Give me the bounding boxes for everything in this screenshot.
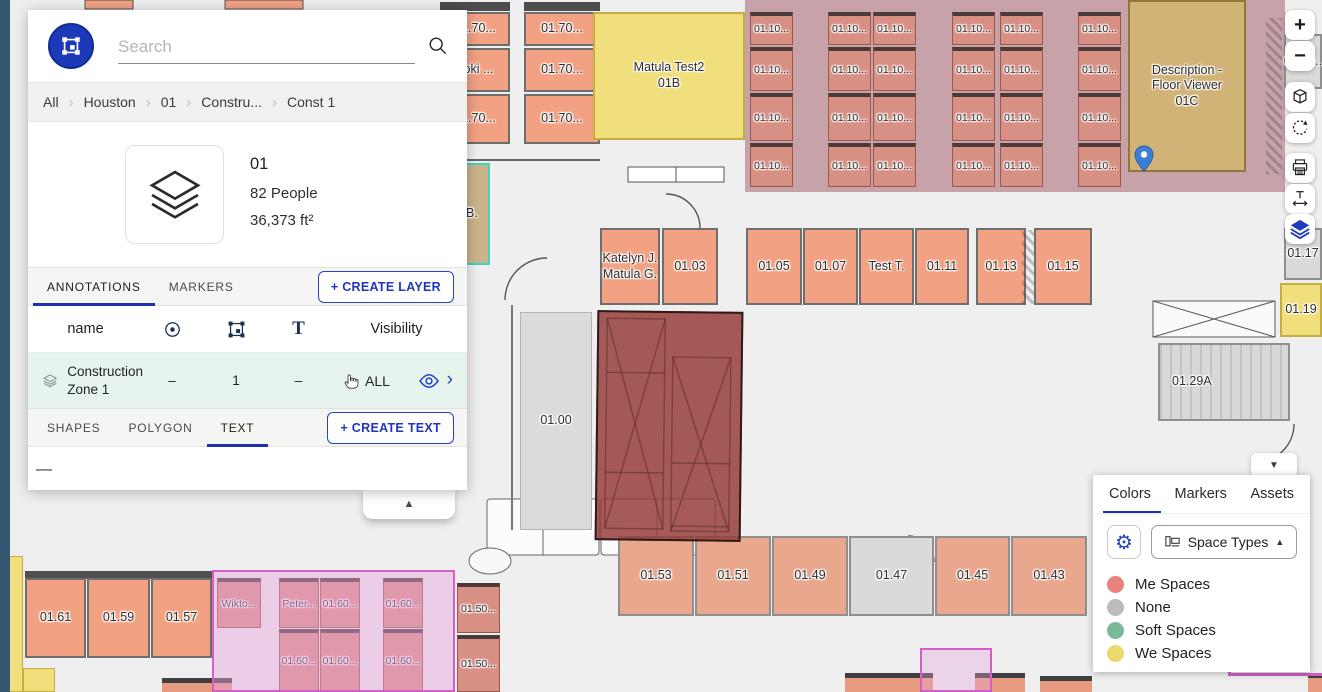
desk-icon — [1164, 535, 1181, 550]
room-label: 01.10... — [754, 64, 789, 77]
desk[interactable]: 01.10... — [828, 12, 871, 45]
legend-item: We Spaces — [1107, 642, 1300, 665]
legend-label: We Spaces — [1135, 645, 1211, 662]
room-label: 01.59 — [103, 610, 134, 626]
room-label: 01.10... — [877, 112, 912, 125]
room-label: 01.49 — [794, 568, 825, 584]
legend-item: Soft Spaces — [1107, 619, 1300, 642]
pink-zone-fragment — [920, 648, 992, 692]
desk[interactable]: 01.10... — [750, 143, 793, 187]
room[interactable]: 01.59 — [87, 578, 150, 658]
room-label: 01.10... — [754, 23, 789, 36]
shape-column-icon — [201, 320, 271, 339]
we-space-fragment — [23, 668, 55, 692]
desk[interactable]: 01.10... — [873, 93, 916, 141]
tab-annotations[interactable]: ANNOTATIONS — [33, 268, 155, 305]
room-label: 01.10... — [956, 160, 991, 173]
room[interactable]: 01.03 — [662, 228, 718, 305]
breadcrumb-chevron-icon: › — [146, 94, 151, 111]
desk[interactable]: 01.10... — [952, 47, 995, 91]
floor-info: 01 82 People 36,373 ft² — [28, 122, 467, 267]
desk-fragment — [1040, 676, 1092, 692]
desk[interactable]: 01.10... — [873, 143, 916, 187]
search-icon[interactable] — [427, 35, 449, 57]
room-label: 01.11 — [927, 259, 957, 275]
chevron-up-icon: ▲ — [1275, 537, 1284, 547]
room[interactable]: 01.29A — [1158, 343, 1290, 421]
room-label: Description - Floor Viewer 01C — [1152, 63, 1222, 110]
room[interactable]: 01.43 — [1011, 536, 1087, 616]
marker-column-icon — [143, 320, 201, 339]
wall-hatch — [1022, 230, 1034, 304]
desk[interactable]: 01.10... — [1078, 47, 1121, 91]
tab-colors[interactable]: Colors — [1109, 475, 1151, 513]
layer-table-header: name T Visibility — [28, 306, 467, 353]
room[interactable]: Test T. — [859, 228, 914, 305]
minus-icon: − — [1294, 45, 1306, 68]
room-label: 01.00 — [540, 413, 571, 429]
legend-color-dot — [1107, 622, 1124, 639]
desk[interactable]: 01.10... — [1078, 143, 1121, 187]
legend-item: None — [1107, 596, 1300, 619]
room-label: 01.10... — [956, 23, 991, 36]
room-label: 01.29A — [1172, 374, 1212, 390]
window-edge-strip — [0, 0, 10, 692]
desk[interactable]: 01.10... — [750, 47, 793, 91]
colors-panel: Colors Markers Assets ⚙ Space Types ▲ Me… — [1093, 475, 1310, 672]
panel-header — [28, 10, 467, 82]
visibility-value[interactable]: ALL — [365, 373, 390, 389]
room-label: B. — [466, 206, 478, 222]
space-types-label: Space Types — [1188, 534, 1269, 550]
cube-icon — [1289, 86, 1311, 108]
room[interactable]: 01.19 — [1280, 283, 1322, 337]
desk[interactable]: 01.10... — [750, 93, 793, 141]
chevron-right-icon[interactable]: › — [447, 369, 453, 391]
room-label: 01.10... — [956, 64, 991, 77]
create-text-button[interactable]: + CREATE TEXT — [327, 412, 454, 444]
plus-icon: + — [1294, 14, 1306, 37]
room[interactable]: 01.61 — [25, 578, 86, 658]
desk[interactable]: 01.10... — [750, 12, 793, 45]
tab-text[interactable]: TEXT — [207, 409, 269, 446]
room[interactable]: 01.47 — [849, 536, 934, 616]
room[interactable]: 01.70... — [524, 94, 600, 144]
desk[interactable]: 01.10... — [952, 12, 995, 45]
room-label: 01.10... — [1082, 23, 1117, 36]
desk[interactable]: 01.10... — [873, 47, 916, 91]
frame-logo-icon — [60, 35, 82, 57]
room-label: 01.50... — [461, 658, 496, 671]
room-label: 01.70... — [541, 62, 583, 78]
desk[interactable]: 01.10... — [873, 12, 916, 45]
room[interactable]: 01.00 — [520, 312, 592, 530]
left-panel: All›Houston›01›Constru...›Const 1 01 82 … — [28, 10, 467, 490]
room-label: Katelyn J. Matula G. — [603, 251, 658, 282]
breadcrumb-item[interactable]: All — [43, 94, 59, 110]
breadcrumb-chevron-icon: › — [186, 94, 191, 111]
room-label: 01.17 — [1287, 246, 1318, 262]
collapse-panel-button[interactable]: ▼ — [1251, 453, 1297, 477]
room-label: 01.10... — [832, 23, 867, 36]
desk[interactable]: 01.10... — [952, 93, 995, 141]
breadcrumb: All›Houston›01›Constru...›Const 1 — [28, 82, 467, 122]
breadcrumb-item[interactable]: Houston — [84, 94, 136, 110]
room-label: 01.05 — [758, 259, 789, 275]
legend-color-dot — [1107, 576, 1124, 593]
rotate-icon — [1289, 117, 1311, 139]
desk[interactable]: 01.10... — [1000, 93, 1043, 141]
room-label: 01.10... — [1004, 160, 1039, 173]
shape-tabs: SHAPES POLYGON TEXT + CREATE TEXT — [28, 408, 467, 447]
construction-zone-annotation[interactable] — [595, 310, 744, 542]
color-settings-button[interactable]: ⚙ — [1107, 525, 1141, 559]
room[interactable]: 01.57 — [151, 578, 212, 658]
room[interactable]: 01.13 — [976, 228, 1026, 305]
floor-people: 82 People — [250, 181, 370, 207]
pink-zone-edge — [1228, 673, 1322, 676]
room[interactable]: 01.53 — [618, 536, 694, 616]
tab-shapes[interactable]: SHAPES — [33, 409, 115, 446]
room-label: 01.50... — [461, 603, 496, 616]
room-label: 01.15 — [1047, 259, 1078, 275]
breadcrumb-chevron-icon: › — [272, 94, 277, 111]
room-label: 01.45 — [957, 568, 988, 584]
legend-color-dot — [1107, 599, 1124, 616]
room[interactable]: 01.45 — [935, 536, 1010, 616]
room[interactable]: 01.11 — [915, 228, 969, 305]
room-label: 01.10... — [1082, 64, 1117, 77]
chevron-up-icon: ▲ — [404, 498, 415, 510]
legend-color-dot — [1107, 645, 1124, 662]
room-label: Test T. — [869, 259, 905, 275]
legend: Me SpacesNoneSoft SpacesWe Spaces — [1107, 573, 1300, 665]
room-label: 01.10... — [877, 64, 912, 77]
layer-name: Construction Zone 1 — [67, 363, 143, 398]
breadcrumb-item[interactable]: Constru... — [201, 94, 262, 110]
room-label: 01.10... — [877, 160, 912, 173]
tab-assets[interactable]: Assets — [1250, 475, 1294, 513]
column-name: name — [28, 321, 143, 337]
room-label: 01.10... — [832, 112, 867, 125]
room-label: 01.57 — [166, 610, 197, 626]
layer-icon — [42, 370, 58, 392]
floor-card — [125, 145, 224, 244]
room-label: 01.47 — [876, 568, 907, 584]
desk[interactable]: 01.10... — [828, 143, 871, 187]
room-label: 01.53 — [640, 568, 671, 584]
room-label: 01.07 — [815, 259, 846, 275]
measure-text-button[interactable] — [1285, 184, 1315, 214]
desk[interactable]: 01.10... — [1000, 12, 1043, 45]
print-button[interactable] — [1285, 153, 1315, 183]
room-label: 01.10... — [754, 112, 789, 125]
room-label: 01.10... — [1004, 112, 1039, 125]
room-label: 01.10... — [832, 64, 867, 77]
search-input[interactable] — [118, 37, 415, 63]
wall-hatch — [1266, 18, 1282, 174]
create-layer-button[interactable]: + CREATE LAYER — [318, 271, 454, 303]
zoom-in-button[interactable]: + — [1285, 10, 1315, 40]
room[interactable]: 01.51 — [695, 536, 771, 616]
room-label: 01.19 — [1285, 302, 1316, 318]
room[interactable]: 01.70... — [524, 12, 600, 46]
app-logo[interactable] — [48, 23, 94, 69]
text-column-icon: T — [292, 318, 305, 340]
breadcrumb-item[interactable]: Const 1 — [287, 94, 335, 110]
room-label: 01.10... — [1004, 23, 1039, 36]
room-label: Matula Test2 01B — [634, 60, 705, 91]
room-label: 01.03 — [674, 259, 705, 275]
room[interactable]: 01.70... — [524, 48, 600, 92]
room[interactable]: 01.07 — [803, 228, 858, 305]
legend-label: None — [1135, 599, 1171, 616]
room-label: 01.43 — [1033, 568, 1064, 584]
layer-shape-count: 1 — [201, 373, 271, 388]
desk[interactable]: 01.10... — [828, 93, 871, 141]
layers-icon — [146, 166, 204, 224]
room[interactable]: 01.49 — [772, 536, 848, 616]
desk[interactable]: 01.10... — [828, 47, 871, 91]
legend-label: Me Spaces — [1135, 576, 1210, 593]
pink-zone-annotation[interactable] — [212, 570, 455, 692]
room-label: 01.13 — [985, 259, 1016, 275]
stairwell-pattern — [597, 312, 737, 535]
room[interactable]: Katelyn J. Matula G. — [600, 228, 660, 305]
room-label: 01.10... — [1082, 160, 1117, 173]
room-label: 01.10... — [1082, 112, 1117, 125]
layers-icon — [1289, 218, 1311, 240]
cursor-hand-icon — [342, 370, 363, 391]
desk[interactable]: 01.10... — [952, 143, 995, 187]
floor-title: 01 — [250, 155, 370, 174]
desk[interactable]: 01.10... — [1000, 47, 1043, 91]
tab-markers[interactable]: Markers — [1175, 475, 1227, 513]
floor-area: 36,373 ft² — [250, 208, 370, 234]
map-pin-icon[interactable] — [1132, 144, 1156, 174]
space-types-dropdown[interactable]: Space Types ▲ — [1151, 525, 1297, 559]
desk[interactable]: 01.10... — [1078, 12, 1121, 45]
floor-viewer-app: 01.70...Loki ...01.70...01.70...01.70...… — [0, 0, 1322, 692]
search-field[interactable] — [118, 29, 415, 64]
room-label: 01.10... — [754, 160, 789, 173]
rotate-button[interactable] — [1285, 113, 1315, 143]
gear-icon: ⚙ — [1115, 530, 1133, 555]
colors-panel-tabs: Colors Markers Assets — [1093, 475, 1310, 514]
layer-row-construction-zone[interactable]: Construction Zone 1 – 1 – ALL › — [28, 353, 467, 408]
breadcrumb-item[interactable]: 01 — [161, 94, 177, 110]
room-label: 01.70... — [541, 21, 583, 37]
desk[interactable]: 01.10... — [1078, 93, 1121, 141]
printer-icon — [1289, 157, 1311, 179]
room-label: 01.51 — [717, 568, 748, 584]
room-label: 01.10... — [1004, 64, 1039, 77]
room[interactable]: 01.50... — [457, 635, 500, 692]
layer-text-count: – — [271, 373, 326, 388]
room-label: 01.10... — [832, 160, 867, 173]
layers-tool-button[interactable] — [1285, 214, 1315, 244]
room[interactable]: 01.05 — [746, 228, 802, 305]
tab-polygon[interactable]: POLYGON — [115, 409, 207, 446]
chevron-down-icon: ▼ — [1269, 460, 1279, 471]
view-3d-button[interactable] — [1285, 82, 1315, 112]
zoom-out-button[interactable]: − — [1285, 41, 1315, 71]
room[interactable]: 01.50... — [457, 583, 500, 633]
room-label: 01.10... — [956, 112, 991, 125]
column-visibility: Visibility — [326, 321, 467, 337]
legend-label: Soft Spaces — [1135, 622, 1216, 639]
measure-icon — [1289, 188, 1311, 210]
breadcrumb-chevron-icon: › — [69, 94, 74, 111]
eye-icon[interactable] — [418, 370, 440, 392]
room-label: 01.10... — [877, 23, 912, 36]
legend-item: Me Spaces — [1107, 573, 1300, 596]
room[interactable]: 01.15 — [1034, 228, 1092, 305]
room-label: 01.70... — [541, 111, 583, 127]
desk[interactable]: 01.10... — [1000, 143, 1043, 187]
expand-panel-button[interactable]: ▲ — [363, 489, 455, 519]
tab-markers[interactable]: MARKERS — [155, 268, 248, 305]
layer-tabs: ANNOTATIONS MARKERS + CREATE LAYER — [28, 267, 467, 306]
room-label: 01.61 — [40, 610, 71, 626]
empty-text-list: — — [28, 447, 467, 490]
room[interactable]: Matula Test2 01B — [593, 12, 745, 140]
layer-marker-count: – — [143, 373, 201, 388]
